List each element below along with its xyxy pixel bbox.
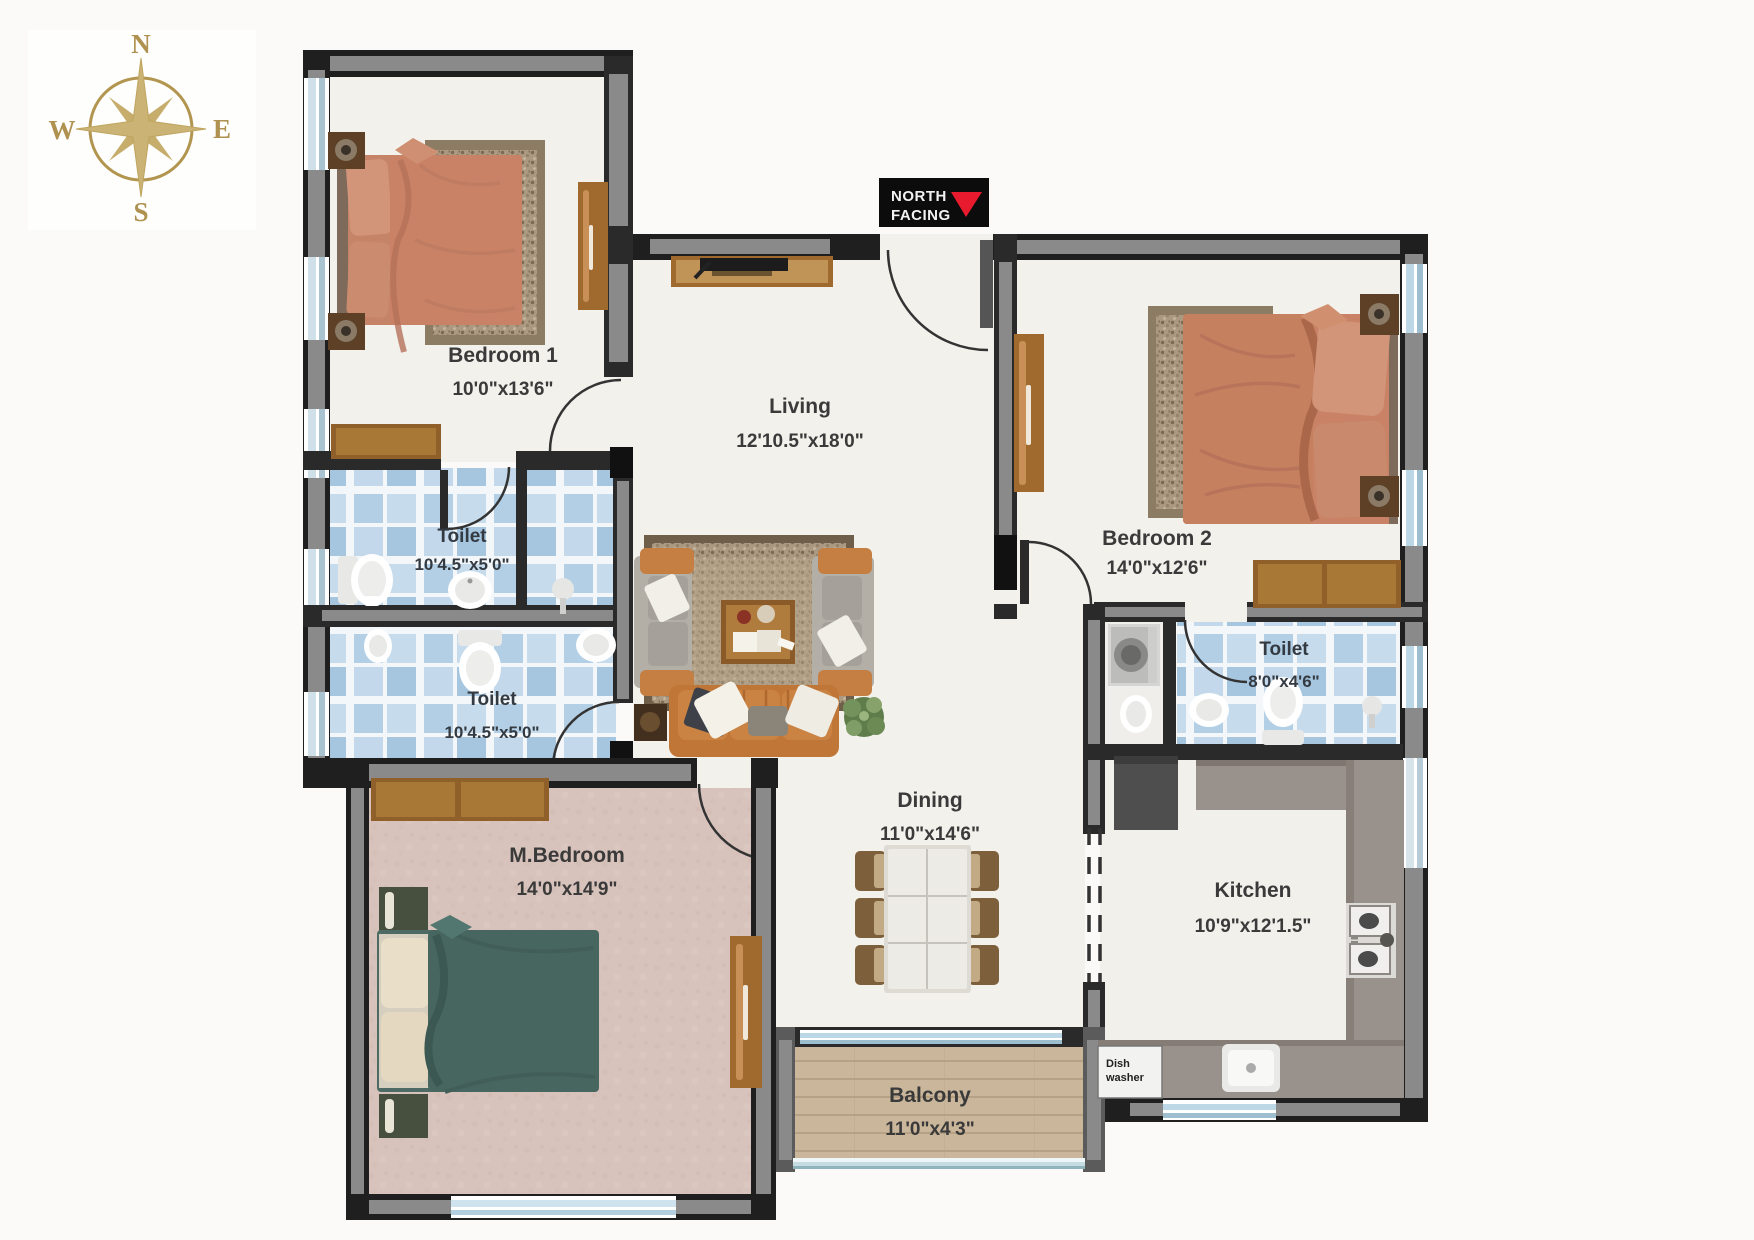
svg-text:10'0"x13'6": 10'0"x13'6" <box>452 379 553 400</box>
svg-text:11'0"x14'6": 11'0"x14'6" <box>880 824 980 845</box>
svg-text:14'0"x14'9": 14'0"x14'9" <box>516 879 617 900</box>
svg-text:N: N <box>131 29 151 59</box>
svg-text:Toilet: Toilet <box>467 689 517 710</box>
svg-text:10'4.5"x5'0": 10'4.5"x5'0" <box>414 555 509 574</box>
svg-text:Dining: Dining <box>897 789 962 812</box>
svg-text:Dish: Dish <box>1106 1058 1130 1070</box>
svg-text:11'0"x4'3": 11'0"x4'3" <box>885 1119 974 1140</box>
svg-text:S: S <box>133 197 148 227</box>
svg-text:14'0"x12'6": 14'0"x12'6" <box>1106 558 1207 579</box>
svg-text:NORTH: NORTH <box>891 188 947 205</box>
svg-text:W: W <box>49 115 76 145</box>
svg-text:Toilet: Toilet <box>437 526 487 547</box>
svg-text:washer: washer <box>1105 1072 1145 1084</box>
svg-text:10'4.5"x5'0": 10'4.5"x5'0" <box>444 723 539 742</box>
svg-text:Toilet: Toilet <box>1259 639 1309 660</box>
svg-text:Bedroom 1: Bedroom 1 <box>448 344 558 367</box>
svg-text:12'10.5"x18'0": 12'10.5"x18'0" <box>736 431 863 452</box>
svg-text:E: E <box>213 114 231 144</box>
svg-text:10'9"x12'1.5": 10'9"x12'1.5" <box>1195 916 1312 937</box>
svg-text:M.Bedroom: M.Bedroom <box>509 844 625 867</box>
svg-text:Bedroom 2: Bedroom 2 <box>1102 527 1212 550</box>
svg-text:Balcony: Balcony <box>889 1084 971 1107</box>
svg-text:8'0"x4'6": 8'0"x4'6" <box>1248 672 1319 691</box>
svg-text:FACING: FACING <box>891 207 951 224</box>
svg-text:Living: Living <box>769 395 831 418</box>
svg-text:Kitchen: Kitchen <box>1214 879 1291 902</box>
